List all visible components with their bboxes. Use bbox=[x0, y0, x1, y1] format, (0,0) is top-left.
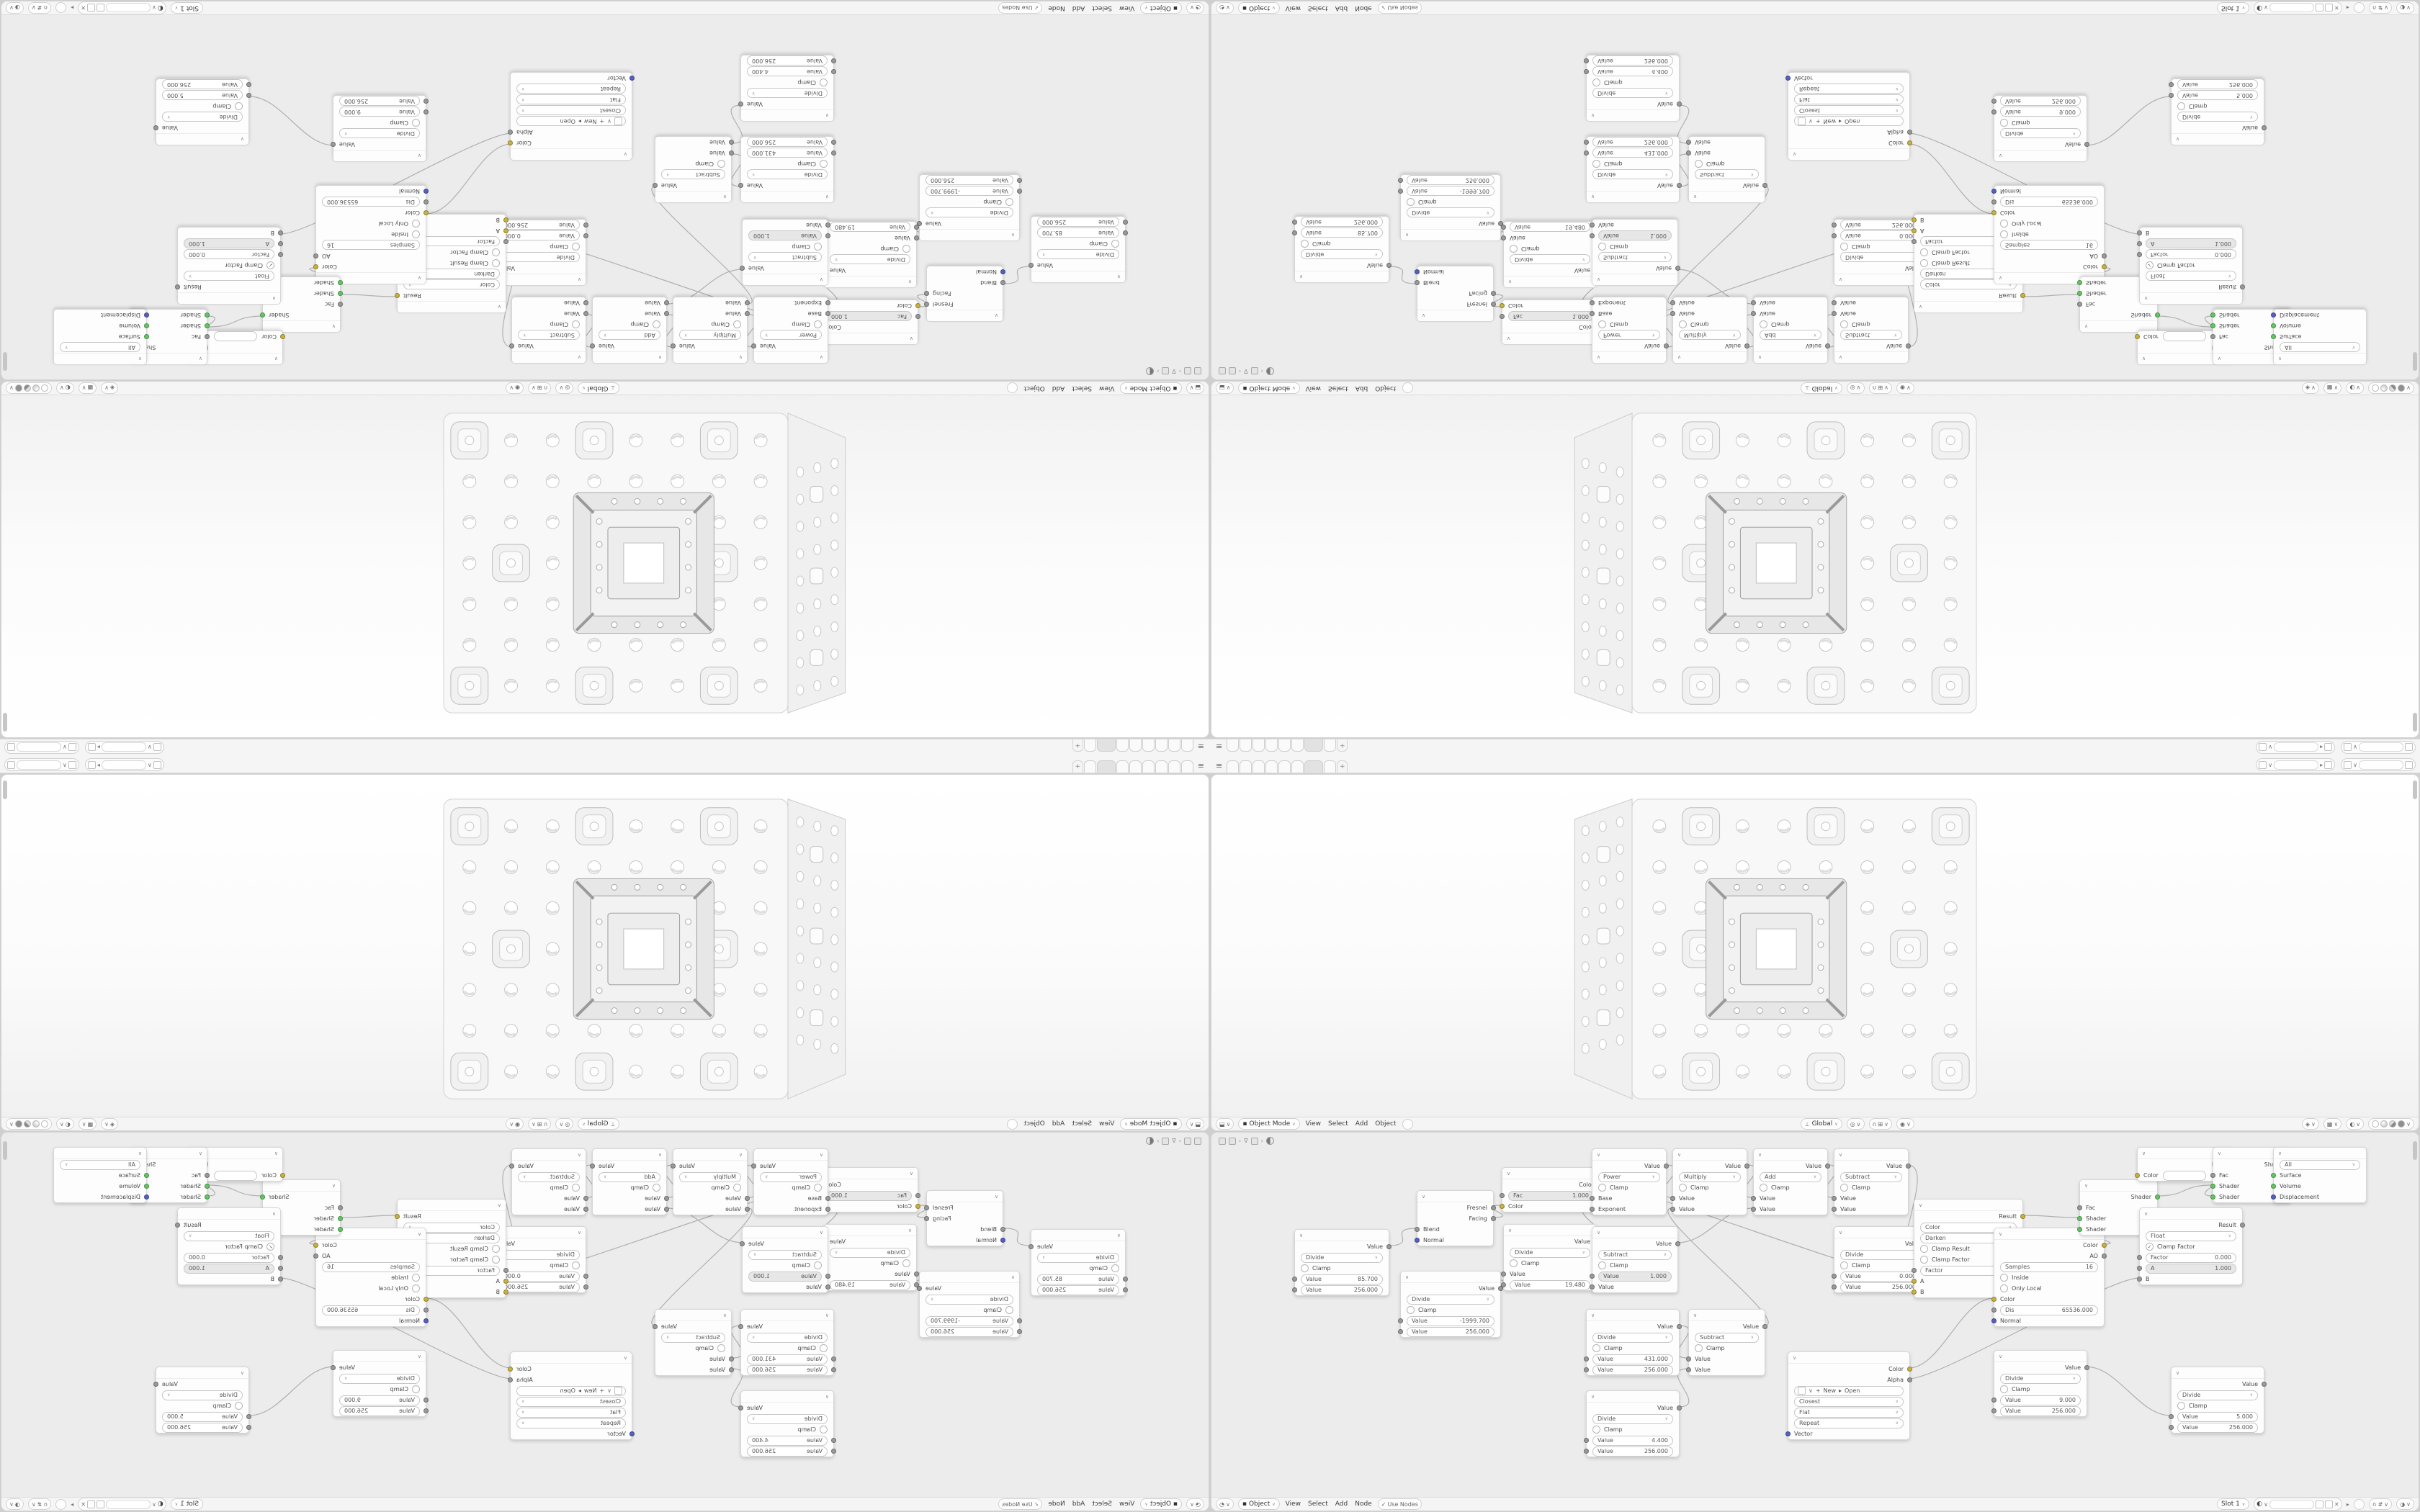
checkbox-icon[interactable] bbox=[2000, 220, 2008, 228]
gizmo-toggle[interactable]: ◈∨ bbox=[2302, 1118, 2319, 1130]
input-socket[interactable] bbox=[583, 233, 588, 238]
app-menu-icon[interactable]: ≡ bbox=[1216, 761, 1222, 770]
node-math-add[interactable]: ∨ValueAdd∨ClampValueValue bbox=[1753, 297, 1828, 364]
node-dropdown[interactable]: Subtract∨ bbox=[661, 1333, 725, 1343]
node-math-divide-9[interactable]: ∨ValueDivide∨ClampValue9.000Value256.000 bbox=[1994, 95, 2087, 162]
input-socket[interactable] bbox=[831, 1449, 836, 1454]
shading-rendered-icon[interactable] bbox=[15, 384, 22, 392]
node-collapse-header[interactable]: ∨ bbox=[2274, 1148, 2366, 1159]
node-dropdown[interactable]: Power∨ bbox=[760, 330, 822, 341]
view-layer-name-input[interactable] bbox=[17, 743, 61, 752]
output-socket[interactable] bbox=[1744, 343, 1749, 348]
viewport-menu-add[interactable]: Add bbox=[1354, 384, 1369, 392]
copy-icon[interactable] bbox=[2325, 1500, 2333, 1508]
node-menu-add[interactable]: Add bbox=[1334, 1500, 1349, 1508]
node-math-subtract-2[interactable]: ∨ValueSubtract∨ClampValueValue bbox=[655, 1309, 732, 1376]
value-field[interactable]: Value-1999.700 bbox=[926, 1316, 1013, 1326]
input-socket[interactable] bbox=[246, 1414, 251, 1419]
shading-material-icon[interactable] bbox=[24, 1120, 31, 1128]
checkbox-icon[interactable] bbox=[2177, 1402, 2185, 1410]
input-socket[interactable] bbox=[1991, 1308, 1996, 1313]
output-socket[interactable] bbox=[2262, 125, 2267, 130]
output-socket[interactable] bbox=[738, 1324, 743, 1329]
output-socket[interactable] bbox=[509, 1164, 514, 1169]
copy-icon[interactable] bbox=[88, 761, 96, 769]
workspace-tab[interactable] bbox=[1084, 739, 1096, 752]
fake-user-shield-icon[interactable] bbox=[97, 1500, 104, 1508]
snap-controls[interactable]: ◎∨ bbox=[1847, 1118, 1865, 1130]
node-collapse-header[interactable]: ∨ bbox=[2274, 353, 2366, 364]
node-collapse-header[interactable]: ∨ bbox=[512, 1149, 586, 1161]
value-field[interactable]: Value256.000 bbox=[1840, 220, 1921, 230]
input-socket[interactable] bbox=[1398, 1329, 1403, 1334]
proportional-edit-control[interactable]: ◉∨ bbox=[1896, 1118, 1914, 1130]
search-icon[interactable] bbox=[1402, 1119, 1413, 1130]
new-workspace-button[interactable]: + bbox=[1337, 739, 1348, 752]
node-collapse-header[interactable]: ∨ bbox=[263, 1180, 340, 1192]
checkbox-icon[interactable] bbox=[1510, 245, 1518, 253]
node-collapse-header[interactable]: ∨ bbox=[1673, 351, 1747, 363]
input-socket[interactable] bbox=[1785, 76, 1791, 81]
material-slot-dropdown[interactable]: Slot 1∨ bbox=[171, 1498, 203, 1510]
checkbox-icon[interactable] bbox=[1592, 1344, 1600, 1352]
workspace-tab[interactable] bbox=[1181, 739, 1193, 752]
input-socket[interactable] bbox=[2137, 230, 2142, 235]
node-math-divide-c[interactable]: ∨ValueDivide∨ClampValueValue19.480 bbox=[823, 221, 917, 288]
node-dropdown[interactable]: Multiply∨ bbox=[1679, 1172, 1741, 1182]
node-collapse-header[interactable]: ∨ bbox=[741, 1391, 833, 1403]
output-socket[interactable] bbox=[2102, 1254, 2107, 1259]
node-dropdown[interactable]: Multiply∨ bbox=[679, 1172, 741, 1182]
checkbox-icon[interactable] bbox=[1840, 320, 1848, 328]
node-mix-float[interactable]: ∨ResultFloat∨✓Clamp FactorFactor0.000A1.… bbox=[2139, 227, 2243, 305]
node-dropdown[interactable]: Float∨ bbox=[2146, 271, 2236, 282]
checkbox-icon[interactable] bbox=[235, 102, 243, 110]
value-field[interactable]: Value9.000 bbox=[2000, 107, 2081, 117]
input-socket[interactable] bbox=[2137, 1277, 2142, 1282]
node-menu-view[interactable]: View bbox=[1284, 4, 1302, 12]
input-socket[interactable] bbox=[914, 235, 919, 240]
input-socket[interactable] bbox=[503, 1279, 508, 1284]
node-dropdown[interactable]: Repeat∨ bbox=[1794, 84, 1904, 94]
node-material-output[interactable]: ∨All∨SurfaceVolumeDisplacement bbox=[2273, 1147, 2367, 1203]
output-socket[interactable] bbox=[331, 1365, 336, 1370]
node-dropdown[interactable]: Closest∨ bbox=[516, 1397, 626, 1407]
value-field[interactable]: Samples16 bbox=[2000, 1262, 2098, 1272]
value-field[interactable]: Value431.000 bbox=[747, 148, 828, 158]
input-socket[interactable] bbox=[2077, 1216, 2082, 1221]
node-dropdown[interactable]: Divide∨ bbox=[747, 1414, 828, 1424]
value-field[interactable]: Value0.000 bbox=[1840, 231, 1921, 241]
scene-name-input[interactable] bbox=[2274, 743, 2318, 752]
scene-name-input[interactable] bbox=[102, 743, 146, 752]
input-socket[interactable] bbox=[2137, 241, 2142, 246]
input-socket[interactable] bbox=[423, 109, 429, 114]
node-math-divide-431[interactable]: ∨ValueDivide∨ClampValue431.000Value256.0… bbox=[1586, 136, 1680, 203]
xray-toggle[interactable]: ◐∨ bbox=[56, 1118, 74, 1130]
node-collapse-header[interactable]: ∨ bbox=[655, 1310, 731, 1321]
input-socket[interactable] bbox=[745, 300, 750, 305]
node-collapse-header[interactable]: ∨ bbox=[54, 1148, 146, 1159]
node-collapse-header[interactable]: ∨ bbox=[493, 274, 586, 285]
node-collapse-header[interactable]: ∨ bbox=[673, 1149, 747, 1161]
value-field[interactable]: Value5.000 bbox=[2177, 91, 2258, 101]
pin-icon[interactable]: ▸ bbox=[97, 762, 100, 768]
input-socket[interactable] bbox=[825, 222, 830, 228]
gizmo-toggle[interactable]: ◈∨ bbox=[101, 1118, 118, 1130]
input-socket[interactable] bbox=[246, 93, 251, 98]
checkbox-icon[interactable] bbox=[1695, 160, 1703, 168]
output-socket[interactable] bbox=[1677, 1324, 1682, 1329]
shading-rendered-icon[interactable] bbox=[2398, 384, 2405, 392]
input-socket[interactable] bbox=[1017, 1318, 1022, 1323]
node-dropdown[interactable]: Subtract∨ bbox=[661, 170, 725, 180]
output-socket[interactable] bbox=[1491, 291, 1496, 296]
workspace-tab[interactable] bbox=[1181, 760, 1193, 773]
node-dropdown[interactable]: All∨ bbox=[60, 343, 140, 353]
node-collapse-header[interactable]: ∨ bbox=[178, 1208, 280, 1220]
node-collapse-header[interactable]: ∨ bbox=[156, 133, 248, 145]
node-math-divide-44[interactable]: ∨ValueDivide∨ClampValue4.400Value256.000 bbox=[1586, 55, 1680, 122]
node-dropdown[interactable]: Power∨ bbox=[760, 1172, 822, 1182]
node-dropdown[interactable]: Divide∨ bbox=[1840, 253, 1921, 263]
output-socket[interactable] bbox=[1028, 263, 1034, 268]
shading-material-icon[interactable] bbox=[2389, 1120, 2396, 1128]
node-dropdown[interactable]: Flat∨ bbox=[516, 95, 626, 105]
value-field[interactable]: Value5.000 bbox=[162, 1412, 243, 1422]
gizmo-toggle[interactable]: ◈∨ bbox=[101, 382, 118, 394]
input-socket[interactable] bbox=[338, 291, 343, 296]
input-socket[interactable] bbox=[423, 1318, 429, 1323]
view-layer-selector[interactable]: ∨ bbox=[4, 741, 79, 754]
node-math-multiply[interactable]: ∨ValueMultiply∨ClampValueValue bbox=[673, 1148, 748, 1215]
output-socket[interactable] bbox=[2020, 293, 2025, 298]
checkbox-icon[interactable] bbox=[1592, 78, 1600, 86]
node-dropdown[interactable]: Divide∨ bbox=[162, 112, 243, 122]
node-math-divide-5[interactable]: ∨ValueDivide∨ClampValue5.000Value256.000 bbox=[2171, 1367, 2264, 1434]
pin-icon[interactable]: ▸ bbox=[97, 744, 100, 751]
input-socket[interactable] bbox=[1751, 311, 1756, 316]
input-socket[interactable] bbox=[1000, 1227, 1005, 1232]
shading-wireframe-icon[interactable] bbox=[2372, 1120, 2379, 1128]
checkbox-icon[interactable] bbox=[492, 1256, 500, 1264]
value-field[interactable]: Value256.000 bbox=[2000, 1406, 2081, 1416]
workspace-tab[interactable] bbox=[1168, 760, 1180, 773]
snap-magnet-control[interactable]: ∩#∨ bbox=[28, 1498, 51, 1510]
output-socket[interactable] bbox=[924, 1205, 929, 1210]
xray-toggle[interactable]: ◐∨ bbox=[2346, 382, 2364, 394]
material-name-input[interactable] bbox=[106, 4, 151, 13]
checkbox-icon[interactable] bbox=[814, 1261, 822, 1269]
copy-icon[interactable] bbox=[2325, 4, 2333, 12]
proportional-edit-control[interactable]: ◉∨ bbox=[506, 382, 524, 394]
input-socket[interactable] bbox=[1584, 1356, 1589, 1362]
node-collapse-header[interactable]: ∨ bbox=[1401, 1272, 1500, 1283]
node-dropdown[interactable]: Subtract∨ bbox=[1695, 170, 1759, 180]
node-dropdown[interactable]: Repeat∨ bbox=[516, 84, 626, 94]
viewport-menu-select[interactable]: Select bbox=[1070, 1120, 1093, 1128]
input-socket[interactable] bbox=[2271, 312, 2276, 318]
node-collapse-header[interactable]: ∨ bbox=[1587, 109, 1679, 121]
node-invert-color[interactable]: ∨ColorFac1.000Color bbox=[1502, 1167, 1600, 1212]
value-field[interactable]: Factor0.000 bbox=[184, 250, 274, 260]
input-socket[interactable] bbox=[825, 1196, 830, 1201]
node-collapse-header[interactable]: ∨ bbox=[1834, 274, 1927, 285]
node-dropdown[interactable]: Divide∨ bbox=[1037, 250, 1119, 260]
input-socket[interactable] bbox=[629, 76, 635, 81]
node-math-power[interactable]: ∨ValuePower∨ClampBaseExponent bbox=[1592, 297, 1667, 364]
node-ambient-occlusion[interactable]: ∨ColorAOSamples16InsideOnly LocalColorDi… bbox=[1994, 185, 2105, 284]
node-collapse-header[interactable]: ∨ bbox=[512, 351, 586, 363]
checkbox-icon[interactable] bbox=[412, 119, 420, 127]
checkbox-icon[interactable] bbox=[412, 1274, 420, 1282]
input-socket[interactable] bbox=[1832, 311, 1837, 316]
input-socket[interactable] bbox=[1000, 269, 1005, 274]
view-layer-name-input[interactable] bbox=[2359, 760, 2403, 770]
input-socket[interactable] bbox=[278, 230, 283, 235]
node-editor-canvas[interactable]: ›∇›∨ValueDivide∨ClampValue85.700Value256… bbox=[1211, 1133, 2419, 1498]
node-dropdown[interactable]: Flat∨ bbox=[1794, 95, 1904, 105]
input-socket[interactable] bbox=[1670, 1207, 1675, 1212]
input-socket[interactable] bbox=[1991, 1318, 1996, 1323]
output-socket[interactable] bbox=[751, 1164, 756, 1169]
node-dropdown[interactable]: Divide∨ bbox=[1510, 1248, 1590, 1258]
value-field[interactable]: A1.000 bbox=[2146, 1264, 2236, 1274]
node-menu-view[interactable]: View bbox=[1118, 1500, 1136, 1508]
new-image-button[interactable]: New bbox=[584, 118, 596, 125]
node-collapse-header[interactable]: ∨ bbox=[1031, 1230, 1125, 1241]
value-field[interactable]: Value256.000 bbox=[162, 1423, 243, 1433]
input-socket[interactable] bbox=[1017, 189, 1022, 194]
checkbox-icon[interactable] bbox=[1592, 160, 1600, 168]
input-socket[interactable] bbox=[1991, 199, 1996, 204]
input-socket[interactable] bbox=[2169, 82, 2174, 87]
output-socket[interactable] bbox=[2240, 1223, 2245, 1228]
snap-magnet-control[interactable]: ∩⊞∨ bbox=[528, 382, 551, 394]
overlays-toggle[interactable]: ▦∨ bbox=[2323, 1118, 2341, 1130]
output-socket[interactable] bbox=[260, 1194, 265, 1200]
input-socket[interactable] bbox=[2210, 334, 2215, 339]
empty-toggle[interactable] bbox=[2354, 1499, 2365, 1510]
node-dropdown[interactable]: Subtract∨ bbox=[518, 330, 580, 341]
checkbox-icon[interactable] bbox=[1301, 1264, 1309, 1272]
fake-user-shield-icon[interactable] bbox=[2316, 1500, 2323, 1508]
input-socket[interactable] bbox=[915, 1204, 920, 1209]
node-menu-node[interactable]: Node bbox=[1047, 4, 1067, 12]
copy-icon[interactable] bbox=[7, 761, 15, 769]
node-dropdown[interactable]: All∨ bbox=[60, 1160, 140, 1170]
node-collapse-header[interactable]: ∨ bbox=[178, 292, 280, 304]
color-swatch-field[interactable] bbox=[214, 332, 257, 342]
node-math-divide-5[interactable]: ∨ValueDivide∨ClampValue5.000Value256.000 bbox=[156, 78, 249, 145]
value-field[interactable]: Value85.700 bbox=[1301, 228, 1383, 238]
editor-type-button[interactable]: ⬓∨ bbox=[1186, 382, 1204, 394]
node-collapse-header[interactable]: ∨ bbox=[743, 1227, 828, 1238]
snap-magnet-control[interactable]: ∩#∨ bbox=[28, 2, 51, 14]
input-socket[interactable] bbox=[1123, 230, 1128, 235]
output-socket[interactable] bbox=[2262, 1382, 2267, 1387]
input-socket[interactable] bbox=[1912, 217, 1917, 222]
output-socket[interactable] bbox=[924, 291, 929, 296]
node-collapse-header[interactable]: ∨ bbox=[1504, 1225, 1596, 1236]
input-socket[interactable] bbox=[205, 1173, 210, 1178]
value-field[interactable]: Value256.000 bbox=[747, 1365, 828, 1375]
value-field[interactable]: Value19.480 bbox=[830, 222, 910, 233]
node-dropdown[interactable]: Divide∨ bbox=[1510, 255, 1590, 265]
value-field[interactable]: Value1.000 bbox=[1598, 231, 1672, 241]
node-dropdown[interactable]: Multiply∨ bbox=[1679, 330, 1741, 341]
node-collapse-header[interactable]: ∨ bbox=[927, 310, 1003, 321]
checkbox-icon[interactable] bbox=[1840, 243, 1848, 251]
input-socket[interactable] bbox=[1590, 1274, 1595, 1279]
input-socket[interactable] bbox=[831, 150, 836, 156]
node-dropdown[interactable]: Divide∨ bbox=[339, 1374, 420, 1384]
new-workspace-button[interactable]: + bbox=[1072, 760, 1083, 773]
node-invert-color[interactable]: ∨ColorFac1.000Color bbox=[820, 1167, 918, 1212]
copy-icon[interactable] bbox=[7, 744, 15, 752]
checkbox-icon[interactable] bbox=[1592, 1426, 1600, 1434]
input-socket[interactable] bbox=[1991, 1408, 1996, 1413]
value-field[interactable]: Fac1.000 bbox=[826, 1191, 912, 1201]
input-socket[interactable] bbox=[1590, 1284, 1595, 1290]
workspace-tab[interactable] bbox=[1142, 760, 1155, 773]
viewport-menu-view[interactable]: View bbox=[1098, 1120, 1116, 1128]
output-socket[interactable] bbox=[1677, 183, 1682, 188]
output-socket[interactable] bbox=[2102, 1243, 2107, 1248]
node-dropdown[interactable]: Divide∨ bbox=[339, 129, 420, 139]
node-math-subtract-2[interactable]: ∨ValueSubtract∨ClampValueValue bbox=[1688, 1309, 1765, 1376]
viewport-menu-object[interactable]: Object bbox=[1373, 384, 1397, 392]
viewport-menu-add[interactable]: Add bbox=[1051, 384, 1066, 392]
input-socket[interactable] bbox=[280, 1173, 285, 1178]
workspace-tab[interactable] bbox=[1240, 739, 1252, 752]
checkbox-icon[interactable] bbox=[1598, 1184, 1606, 1192]
node-collapse-header[interactable]: ∨ bbox=[743, 274, 828, 285]
node-dropdown[interactable]: Divide∨ bbox=[1592, 1333, 1673, 1343]
material-slot-dropdown[interactable]: Slot 1∨ bbox=[2217, 2, 2249, 14]
value-field[interactable]: Value85.700 bbox=[1301, 1274, 1383, 1284]
node-dropdown[interactable]: Divide∨ bbox=[747, 89, 828, 99]
node-dropdown[interactable]: Multiply∨ bbox=[679, 330, 741, 341]
value-field[interactable]: Value85.700 bbox=[1037, 228, 1119, 238]
node-menu-node[interactable]: Node bbox=[1353, 4, 1373, 12]
shading-wireframe-icon[interactable] bbox=[41, 1120, 48, 1128]
node-collapse-header[interactable]: ∨ bbox=[1502, 1168, 1600, 1179]
node-math-subtract-1[interactable]: ∨ValueSubtract∨ClampValueValue bbox=[1834, 1148, 1909, 1215]
unlink-x-icon[interactable]: ✕ bbox=[2334, 1501, 2339, 1508]
node-math-multiply[interactable]: ∨ValueMultiply∨ClampValueValue bbox=[673, 297, 748, 364]
proportional-edit-control[interactable]: ◉∨ bbox=[1896, 382, 1914, 394]
node-invert-color[interactable]: ∨ColorFac1.000Color bbox=[1502, 300, 1600, 345]
node-collapse-header[interactable]: ∨ bbox=[1689, 191, 1765, 202]
workspace-tab[interactable] bbox=[1265, 760, 1278, 773]
workspace-tab[interactable] bbox=[1304, 760, 1323, 773]
output-socket[interactable] bbox=[1664, 1164, 1669, 1169]
workspace-tab[interactable] bbox=[1324, 760, 1336, 773]
output-socket[interactable] bbox=[313, 1243, 318, 1248]
node-math-divide-c[interactable]: ∨ValueDivide∨ClampValueValue19.480 bbox=[1503, 1224, 1597, 1291]
node-collapse-header[interactable]: ∨ bbox=[920, 1272, 1019, 1283]
output-socket[interactable] bbox=[671, 1164, 676, 1169]
input-socket[interactable] bbox=[205, 323, 210, 328]
node-collapse-header[interactable]: ∨ bbox=[1417, 310, 1493, 321]
new-image-button[interactable]: New bbox=[1824, 1387, 1836, 1394]
output-socket[interactable] bbox=[740, 1241, 745, 1246]
output-socket[interactable] bbox=[2240, 284, 2245, 289]
input-socket[interactable] bbox=[1584, 69, 1589, 74]
node-dropdown[interactable]: Closest∨ bbox=[1794, 106, 1904, 116]
node-collapse-header[interactable]: ∨ bbox=[398, 1200, 506, 1211]
output-socket[interactable] bbox=[738, 183, 743, 188]
output-socket[interactable] bbox=[1825, 1164, 1830, 1169]
node-collapse-header[interactable]: ∨ bbox=[673, 351, 747, 363]
output-socket[interactable] bbox=[2102, 253, 2107, 258]
node-collapse-header[interactable]: ∨ bbox=[593, 351, 666, 363]
app-menu-icon[interactable]: ≡ bbox=[1198, 742, 1204, 751]
node-math-subtract-1[interactable]: ∨ValueSubtract∨ClampValueValue bbox=[511, 297, 586, 364]
input-socket[interactable] bbox=[1415, 1227, 1420, 1232]
use-nodes-checkbox[interactable]: ✓Use Nodes bbox=[1378, 2, 1422, 14]
proportional-edit-control[interactable]: ◉∨ bbox=[506, 1118, 524, 1130]
node-image-texture[interactable]: ∨ColorAlpha∨+New▸OpenClosest∨Flat∨Repeat… bbox=[510, 1351, 632, 1440]
pin-icon[interactable]: ▸ bbox=[2320, 762, 2323, 768]
output-socket[interactable] bbox=[738, 1405, 743, 1410]
use-nodes-checkbox[interactable]: ✓Use Nodes bbox=[998, 1498, 1042, 1510]
value-field[interactable]: Value256.000 bbox=[1037, 1285, 1119, 1295]
input-socket[interactable] bbox=[1584, 58, 1589, 63]
value-field[interactable]: Factor0.000 bbox=[2146, 1253, 2236, 1263]
viewport-scrollbar[interactable] bbox=[2413, 780, 2417, 799]
node-editor-canvas[interactable]: ›∇›∨ValueDivide∨ClampValue85.700Value256… bbox=[1211, 14, 2419, 379]
editor-type-button[interactable]: ◔∨ bbox=[1216, 1498, 1234, 1510]
unlink-x-icon[interactable]: ✕ bbox=[81, 5, 86, 12]
input-socket[interactable] bbox=[825, 233, 830, 238]
input-socket[interactable] bbox=[246, 82, 251, 87]
value-field[interactable]: Value431.000 bbox=[747, 1354, 828, 1364]
node-collapse-header[interactable]: ∨ bbox=[156, 1367, 248, 1379]
node-material-output[interactable]: ∨All∨SurfaceVolumeDisplacement bbox=[53, 309, 147, 365]
input-socket[interactable] bbox=[745, 311, 750, 316]
checkbox-icon[interactable] bbox=[733, 320, 741, 328]
snap-magnet-control[interactable]: ∩⊞∨ bbox=[1869, 382, 1892, 394]
value-field[interactable]: Value256.000 bbox=[1407, 1327, 1494, 1337]
node-math-divide-44[interactable]: ∨ValueDivide∨ClampValue4.400Value256.000 bbox=[740, 1390, 834, 1457]
input-socket[interactable] bbox=[278, 1266, 283, 1271]
checkbox-icon[interactable] bbox=[820, 1426, 828, 1434]
checkbox-icon[interactable] bbox=[653, 1184, 660, 1192]
checkbox-icon[interactable] bbox=[820, 1344, 828, 1352]
node-collapse-header[interactable]: ∨ bbox=[1031, 271, 1125, 282]
output-socket[interactable] bbox=[590, 1164, 595, 1169]
input-socket[interactable] bbox=[915, 303, 920, 308]
input-socket[interactable] bbox=[1832, 1196, 1837, 1201]
empty-toggle[interactable] bbox=[55, 3, 66, 14]
value-field[interactable]: Value256.000 bbox=[1592, 1446, 1673, 1457]
node-collapse-header[interactable]: ∨ bbox=[54, 353, 146, 364]
input-socket[interactable] bbox=[2137, 252, 2142, 257]
input-socket[interactable] bbox=[1123, 1277, 1128, 1282]
open-image-button[interactable]: Open bbox=[1845, 118, 1860, 125]
input-socket[interactable] bbox=[1292, 230, 1297, 235]
node-dropdown[interactable]: Divide∨ bbox=[830, 255, 910, 265]
input-socket[interactable] bbox=[831, 140, 836, 145]
input-socket[interactable] bbox=[205, 312, 210, 318]
input-socket[interactable] bbox=[423, 1408, 429, 1413]
node-ambient-occlusion[interactable]: ∨ColorAOSamples16InsideOnly LocalColorDi… bbox=[315, 1228, 426, 1327]
node-collapse-header[interactable]: ∨ bbox=[1592, 1227, 1677, 1238]
node-math-subtract-value1[interactable]: ∨ValueSubtract∨ClampValue1.000Value bbox=[742, 1226, 828, 1293]
checkbox-icon[interactable] bbox=[1111, 240, 1119, 248]
